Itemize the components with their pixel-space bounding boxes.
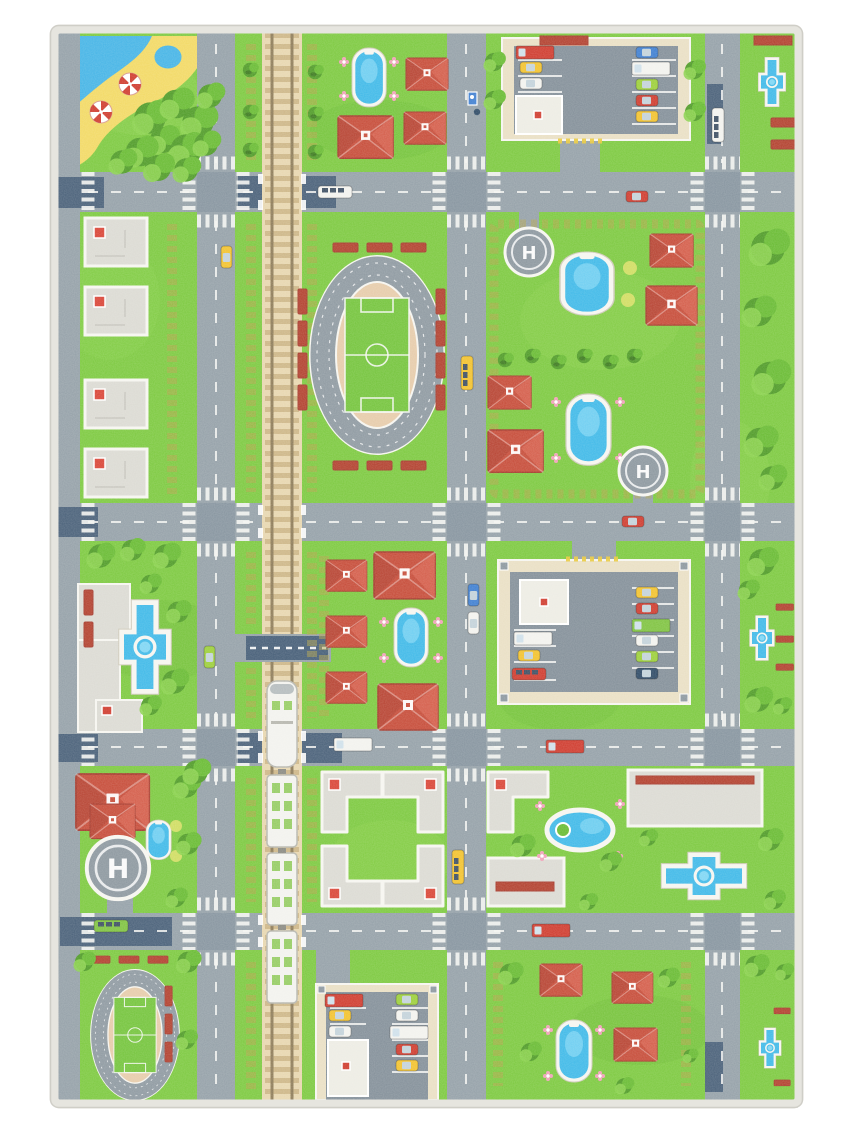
swimming-pool	[394, 608, 428, 667]
car	[396, 1044, 418, 1055]
parking-lot-3	[316, 984, 438, 1100]
red-roof-house	[612, 972, 653, 1003]
bus	[512, 668, 546, 680]
car	[626, 191, 648, 202]
car	[520, 78, 542, 89]
truck	[546, 740, 584, 753]
bench	[84, 622, 93, 647]
train-engine	[267, 681, 297, 767]
yellow-shrub	[170, 820, 182, 832]
train-car	[267, 853, 297, 925]
bench	[776, 604, 794, 610]
bench	[771, 140, 796, 149]
train-car	[267, 775, 297, 847]
truck	[532, 924, 570, 937]
red-roof-house	[326, 616, 367, 647]
athletics-track	[311, 257, 444, 454]
train-coupler	[278, 925, 286, 930]
pedestrian	[474, 109, 480, 115]
bench	[754, 36, 792, 45]
apartment-building	[85, 449, 147, 497]
car	[636, 668, 658, 679]
truck	[390, 1026, 428, 1039]
pond	[153, 44, 183, 70]
swimming-pool	[560, 252, 614, 315]
bus	[452, 850, 464, 884]
red-roof-house	[488, 376, 531, 409]
car	[518, 650, 540, 661]
car	[468, 584, 479, 606]
car	[221, 246, 232, 268]
car	[396, 1060, 418, 1071]
car	[396, 994, 418, 1005]
apartment-building	[85, 380, 147, 428]
bus-stop-glyph	[470, 95, 474, 99]
car	[636, 635, 658, 646]
bench	[774, 1080, 790, 1086]
red-roof-house	[406, 58, 448, 90]
red-roof-house	[540, 964, 582, 996]
yellow-shrub	[623, 261, 637, 275]
office-marker	[342, 1062, 350, 1070]
swimming-pool	[556, 1020, 592, 1082]
lagoon-pool	[547, 810, 613, 850]
building-awning	[540, 36, 588, 45]
bench	[776, 636, 794, 642]
red-roof-house	[650, 234, 693, 267]
building-awning	[496, 882, 554, 891]
bench	[771, 118, 796, 127]
bus	[712, 108, 724, 142]
mansion-wing	[90, 804, 135, 839]
apartment-building	[85, 218, 147, 266]
office-marker	[534, 111, 542, 119]
bus	[94, 920, 128, 932]
red-roof-house	[338, 116, 393, 158]
bench	[102, 706, 112, 715]
truck	[632, 62, 670, 75]
car	[468, 612, 479, 634]
bench	[774, 1008, 790, 1014]
car	[636, 79, 658, 90]
truck	[516, 46, 554, 59]
car	[622, 516, 644, 527]
car	[520, 62, 542, 73]
play-mat-photo: H H	[0, 0, 856, 1140]
photo-background: H H	[0, 0, 856, 1140]
swimming-pool	[352, 48, 386, 107]
swimming-pool	[146, 820, 171, 860]
truck	[325, 994, 363, 1007]
bench	[776, 664, 794, 670]
car	[636, 111, 658, 122]
apartment-building	[85, 287, 147, 335]
parking-lot-2	[498, 559, 690, 704]
red-roof-house	[614, 1028, 657, 1061]
car	[636, 95, 658, 106]
car	[329, 1026, 351, 1037]
car	[636, 587, 658, 598]
red-roof-house	[378, 684, 438, 730]
yellow-shrub	[621, 293, 635, 307]
car	[396, 1010, 418, 1021]
building-awning	[636, 776, 754, 784]
red-roof-house	[646, 286, 697, 325]
car	[636, 603, 658, 614]
level-crossing	[235, 634, 331, 662]
train	[267, 681, 297, 1003]
bench	[84, 590, 93, 615]
office-marker	[540, 598, 548, 606]
helipad-letter: H	[521, 243, 536, 264]
train-car	[267, 931, 297, 1003]
bus	[461, 356, 473, 390]
swimming-pool	[566, 394, 611, 465]
plaza-path	[96, 700, 142, 732]
helipad-letter: H	[635, 462, 650, 483]
car	[636, 651, 658, 662]
parking-3-entrance	[316, 950, 350, 986]
red-roof-house	[326, 672, 367, 703]
car	[636, 47, 658, 58]
red-roof-house	[374, 552, 435, 599]
train-coupler	[278, 769, 286, 774]
parking-lot-1	[468, 36, 706, 141]
truck	[632, 619, 670, 632]
train-coupler	[278, 848, 286, 853]
red-roof-house	[488, 430, 543, 472]
truck	[334, 738, 372, 751]
car	[204, 646, 215, 668]
play-mat-rug: H H	[51, 26, 803, 1109]
red-roof-house	[326, 560, 367, 591]
helipad-letter: H	[107, 854, 130, 885]
truck	[514, 632, 552, 645]
beach-parasol	[119, 73, 141, 95]
car	[329, 1010, 351, 1021]
red-roof-house	[404, 112, 446, 144]
bus	[318, 186, 352, 198]
beach-parasol	[90, 101, 112, 123]
